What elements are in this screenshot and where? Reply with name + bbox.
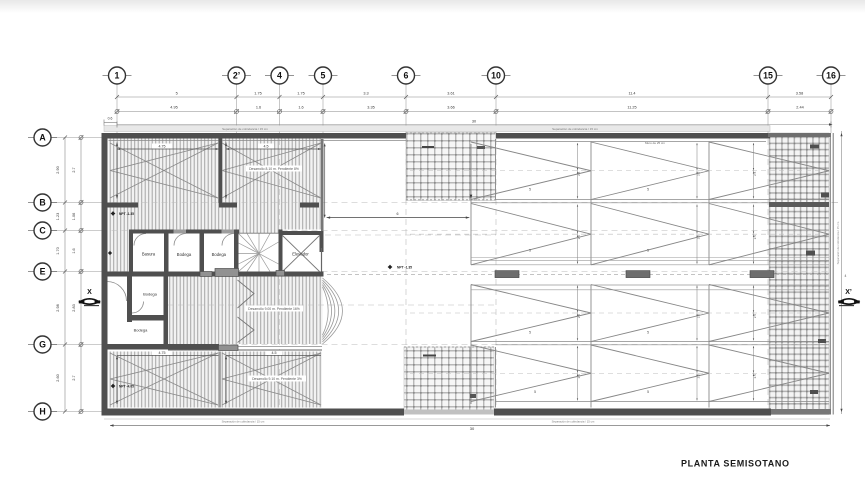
svg-text:H: H	[39, 407, 45, 417]
svg-text:2.5: 2.5	[697, 235, 701, 240]
svg-text:2.90: 2.90	[56, 166, 60, 173]
svg-text:X’: X’	[845, 289, 852, 296]
svg-text:5: 5	[647, 331, 649, 335]
svg-text:5: 5	[534, 390, 536, 394]
svg-text:2.5: 2.5	[753, 374, 757, 379]
svg-text:11.25: 11.25	[627, 105, 636, 109]
svg-text:1: 1	[115, 71, 120, 81]
svg-text:1.06: 1.06	[72, 213, 76, 220]
svg-text:4: 4	[277, 71, 282, 81]
svg-text:2.5: 2.5	[753, 314, 757, 319]
svg-text:6: 6	[397, 212, 399, 216]
svg-text:Basura: Basura	[142, 252, 156, 257]
svg-text:3.66: 3.66	[447, 105, 454, 109]
svg-text:4.95: 4.95	[170, 105, 177, 109]
svg-text:2.7: 2.7	[72, 167, 76, 172]
svg-text:2.5: 2.5	[697, 314, 701, 319]
svg-text:1.6: 1.6	[256, 105, 261, 109]
svg-text:2.5: 2.5	[753, 235, 757, 240]
svg-text:6: 6	[404, 71, 409, 81]
svg-text:11.4: 11.4	[628, 92, 635, 96]
svg-text:3.58: 3.58	[796, 92, 803, 96]
svg-text:0.6: 0.6	[108, 117, 113, 121]
svg-text:1.23: 1.23	[56, 213, 60, 220]
svg-text:Elevador: Elevador	[292, 252, 309, 257]
svg-text:Separación de colindancia / 15: Separación de colindancia / 15 cm	[552, 127, 598, 131]
svg-text:2.5: 2.5	[577, 314, 581, 319]
svg-text:Desarrollo 8.10 m. Pendiente 8: Desarrollo 8.10 m. Pendiente 8%	[249, 167, 299, 171]
svg-text:Bodega: Bodega	[134, 328, 149, 333]
svg-text:2.60: 2.60	[56, 374, 60, 381]
svg-text:E: E	[40, 267, 46, 277]
svg-text:1.75: 1.75	[254, 92, 261, 96]
svg-text:1.6: 1.6	[298, 105, 303, 109]
svg-text:15: 15	[763, 71, 773, 81]
svg-text:1.70: 1.70	[56, 247, 60, 254]
svg-text:4: 4	[845, 274, 847, 278]
svg-text:1.6: 1.6	[72, 248, 76, 253]
svg-text:2.5: 2.5	[753, 171, 757, 176]
svg-text:4.75: 4.75	[159, 145, 166, 149]
svg-text:PLANTA SEMISOTANO: PLANTA SEMISOTANO	[681, 459, 789, 469]
svg-text:5: 5	[529, 188, 531, 192]
svg-text:Separación de colindancia / 15: Separación de colindancia / 15 cm	[222, 127, 268, 131]
svg-text:B: B	[39, 198, 45, 208]
svg-text:5: 5	[529, 331, 531, 335]
svg-text:Bodega: Bodega	[212, 252, 227, 257]
svg-text:Separación de colindancia / 15: Separación de colindancia / 15 cm	[222, 419, 265, 423]
svg-text:4.5: 4.5	[272, 351, 277, 355]
svg-text:Separación de colindancia / 15: Separación de colindancia / 15 cm	[836, 221, 840, 264]
svg-text:Muro de 25 cm: Muro de 25 cm	[645, 141, 666, 145]
svg-text:Bodega: Bodega	[143, 292, 158, 297]
svg-text:3.3: 3.3	[363, 92, 368, 96]
svg-text:2.5: 2.5	[697, 171, 701, 176]
svg-text:X: X	[87, 289, 92, 296]
svg-text:2’: 2’	[233, 71, 240, 81]
svg-text:5: 5	[321, 71, 326, 81]
svg-text:5: 5	[176, 92, 178, 96]
svg-text:G: G	[39, 340, 46, 350]
svg-text:3.61: 3.61	[447, 92, 454, 96]
svg-text:A: A	[39, 133, 46, 143]
svg-text:2.44: 2.44	[796, 105, 803, 109]
svg-text:Desarrollo 9.00 m. Pendiente 1: Desarrollo 9.00 m. Pendiente 16%	[248, 307, 300, 311]
svg-text:NPT -4.05: NPT -4.05	[119, 385, 134, 389]
svg-text:Desarrollo 9.10 m. Pendiente 3: Desarrollo 9.10 m. Pendiente 3%	[252, 377, 302, 381]
svg-text:1.75: 1.75	[297, 92, 304, 96]
svg-text:2.5: 2.5	[577, 374, 581, 379]
svg-text:2.5: 2.5	[577, 235, 581, 240]
svg-text:5: 5	[647, 249, 649, 253]
svg-text:5: 5	[647, 188, 649, 192]
svg-text:Bodega: Bodega	[177, 252, 192, 257]
svg-text:2.5: 2.5	[697, 374, 701, 379]
svg-text:2.83: 2.83	[72, 304, 76, 311]
svg-text:5: 5	[529, 249, 531, 253]
svg-text:30: 30	[470, 426, 475, 431]
svg-text:NPT -1.35: NPT -1.35	[397, 266, 412, 270]
svg-text:2.98: 2.98	[56, 304, 60, 311]
svg-text:5: 5	[647, 390, 649, 394]
svg-text:10: 10	[491, 71, 501, 81]
svg-text:30: 30	[472, 120, 476, 124]
svg-text:NPT -1.35: NPT -1.35	[119, 212, 134, 216]
svg-text:C: C	[39, 226, 46, 236]
svg-text:2.7: 2.7	[72, 375, 76, 380]
svg-text:4.75: 4.75	[159, 351, 166, 355]
svg-text:4.5: 4.5	[264, 145, 269, 149]
svg-text:16: 16	[826, 71, 836, 81]
svg-text:Separación de colindancia / 15: Separación de colindancia / 15 cm	[552, 419, 595, 423]
svg-text:3.35: 3.35	[367, 105, 374, 109]
svg-text:2.5: 2.5	[577, 171, 581, 176]
